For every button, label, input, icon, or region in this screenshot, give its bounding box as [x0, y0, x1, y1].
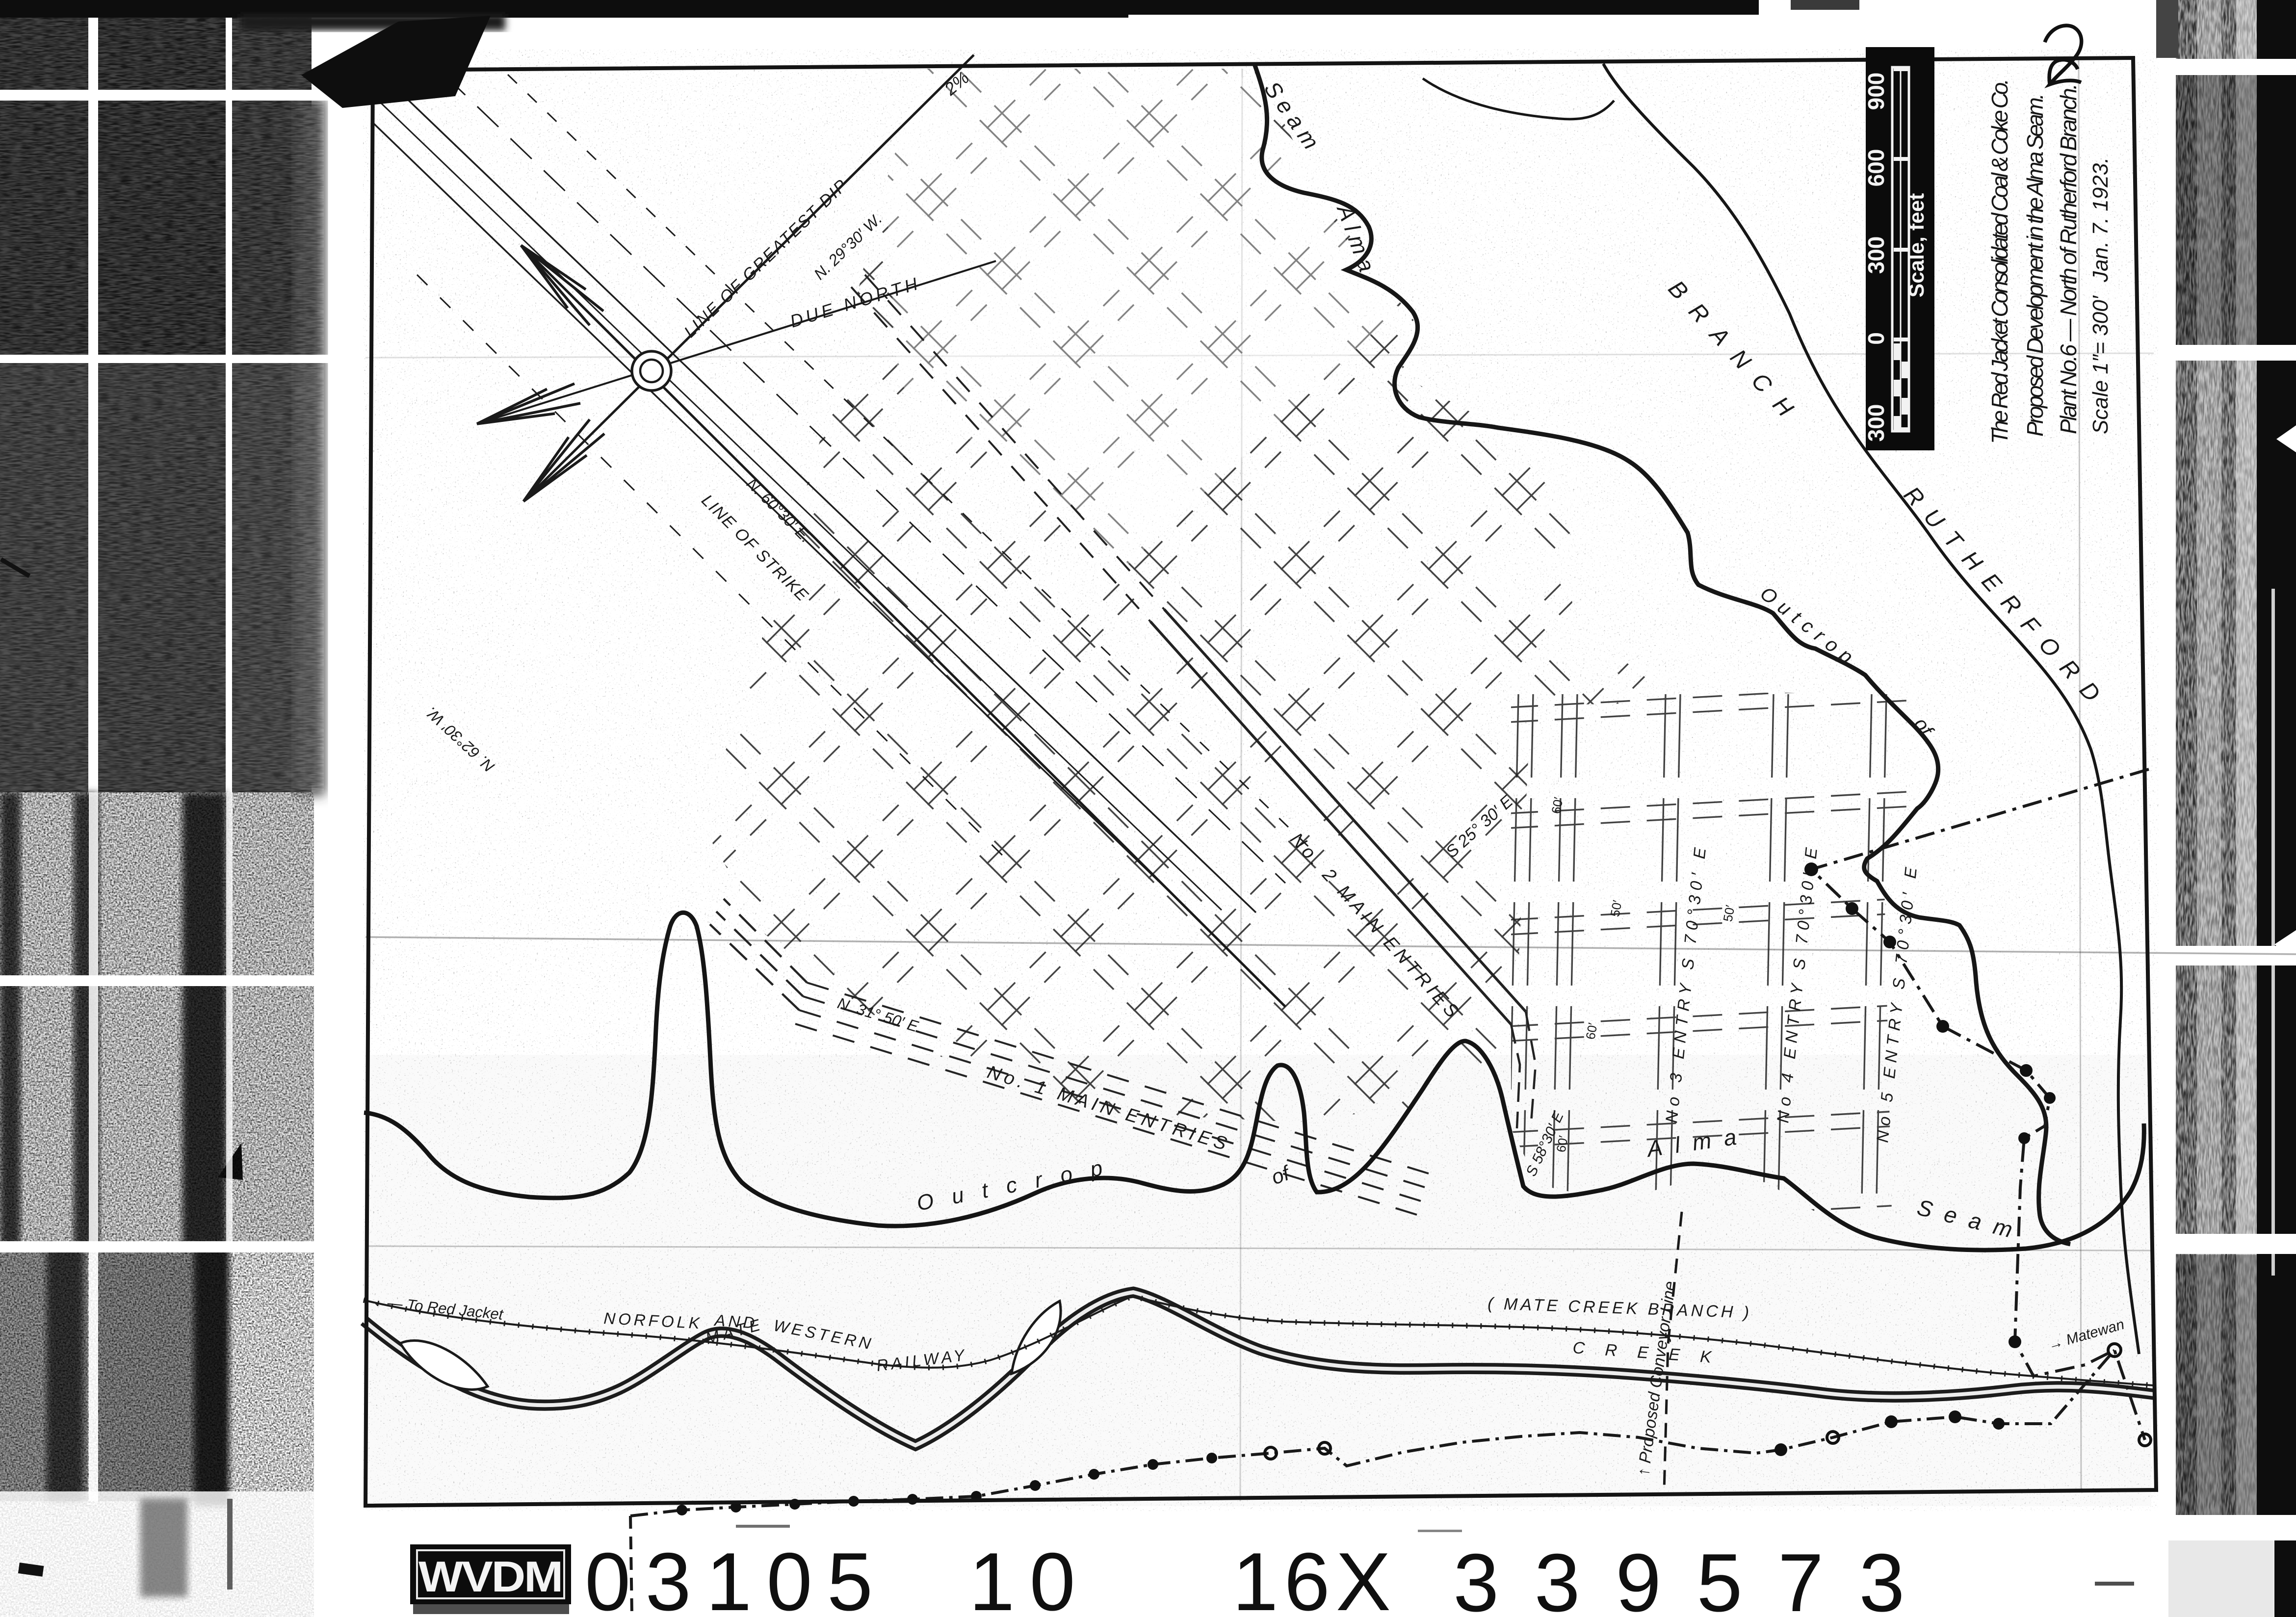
- svg-text:339573: 339573: [1453, 1537, 1940, 1617]
- svg-text:03105: 03105: [585, 1536, 887, 1617]
- svg-text:50′: 50′: [1720, 904, 1737, 923]
- svg-text:Scale, feet: Scale, feet: [1905, 193, 1929, 298]
- svg-text:60′: 60′: [1583, 1021, 1600, 1041]
- svg-text:16X: 16X: [1232, 1536, 1397, 1617]
- svg-text:10: 10: [969, 1536, 1090, 1617]
- svg-text:Plant No.6 — North of Rutherfo: Plant No.6 — North of Rutherford Branch.: [2056, 83, 2081, 434]
- svg-text:Proposed Development in the Al: Proposed Development in the Alma Seam.: [2022, 93, 2048, 437]
- svg-text:900: 900: [1863, 73, 1889, 110]
- svg-text:Scale 1″= 300′: Scale 1″= 300′: [2088, 295, 2113, 434]
- svg-text:600: 600: [1863, 149, 1889, 187]
- svg-text:60′: 60′: [1548, 796, 1565, 815]
- svg-text:0: 0: [1863, 332, 1889, 345]
- svg-text:50′: 50′: [1607, 899, 1624, 918]
- svg-text:60′: 60′: [1553, 1134, 1570, 1153]
- svg-text:300: 300: [1863, 404, 1889, 442]
- svg-text:The Red Jacket Consolidated Co: The Red Jacket Consolidated Coal & Coke …: [1987, 78, 2012, 444]
- svg-text:WVDM: WVDM: [418, 1552, 562, 1601]
- svg-text:Jan. 7. 1923.: Jan. 7. 1923.: [2088, 157, 2113, 283]
- svg-text:300: 300: [1863, 236, 1889, 274]
